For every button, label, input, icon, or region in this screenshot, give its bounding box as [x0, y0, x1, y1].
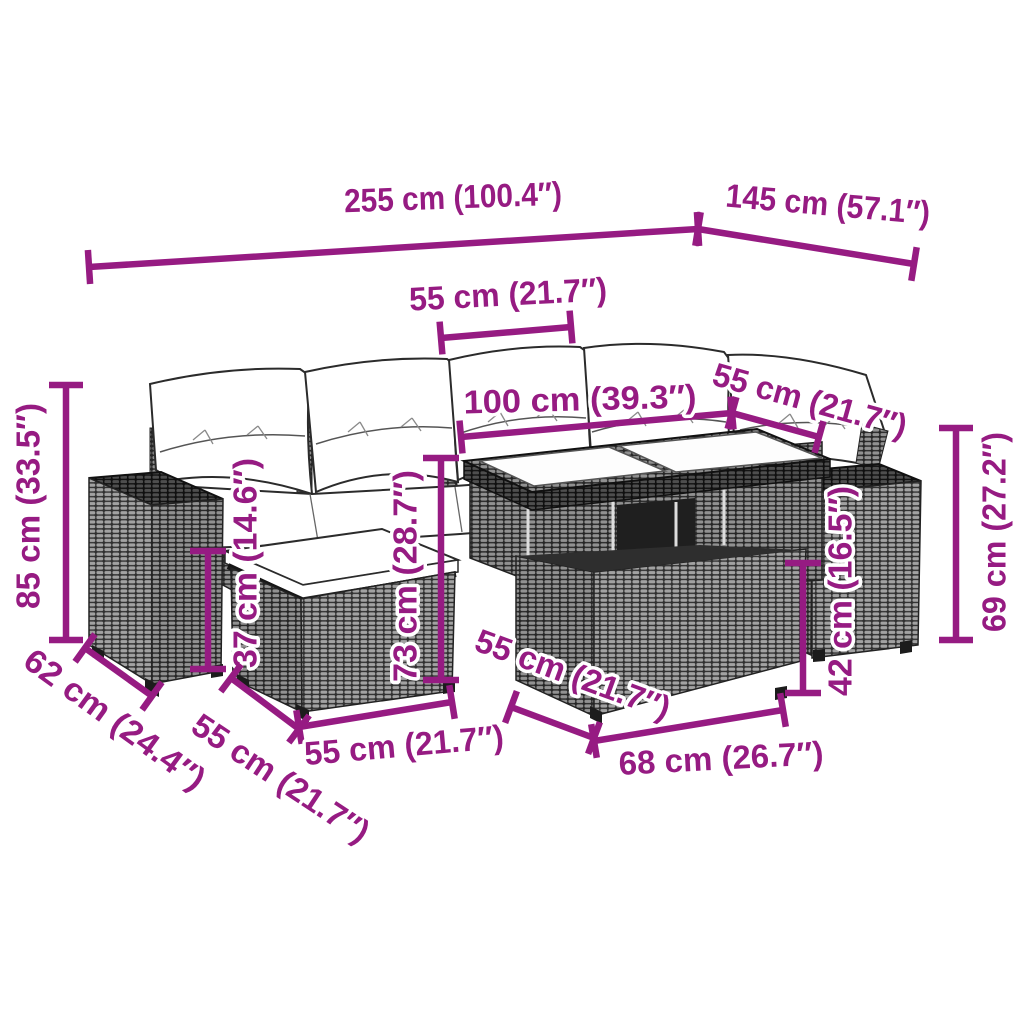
svg-text:85 cm (33.5″): 85 cm (33.5″): [10, 403, 47, 609]
svg-text:37 cm (14.6″): 37 cm (14.6″): [227, 458, 264, 668]
svg-text:73 cm (28.7″): 73 cm (28.7″): [387, 470, 424, 682]
svg-text:255 cm (100.4″): 255 cm (100.4″): [343, 175, 562, 220]
svg-text:100 cm (39.3″): 100 cm (39.3″): [463, 377, 697, 420]
svg-text:69 cm (27.2″): 69 cm (27.2″): [976, 432, 1013, 632]
svg-text:42 cm (16.5″): 42 cm (16.5″): [822, 486, 859, 696]
